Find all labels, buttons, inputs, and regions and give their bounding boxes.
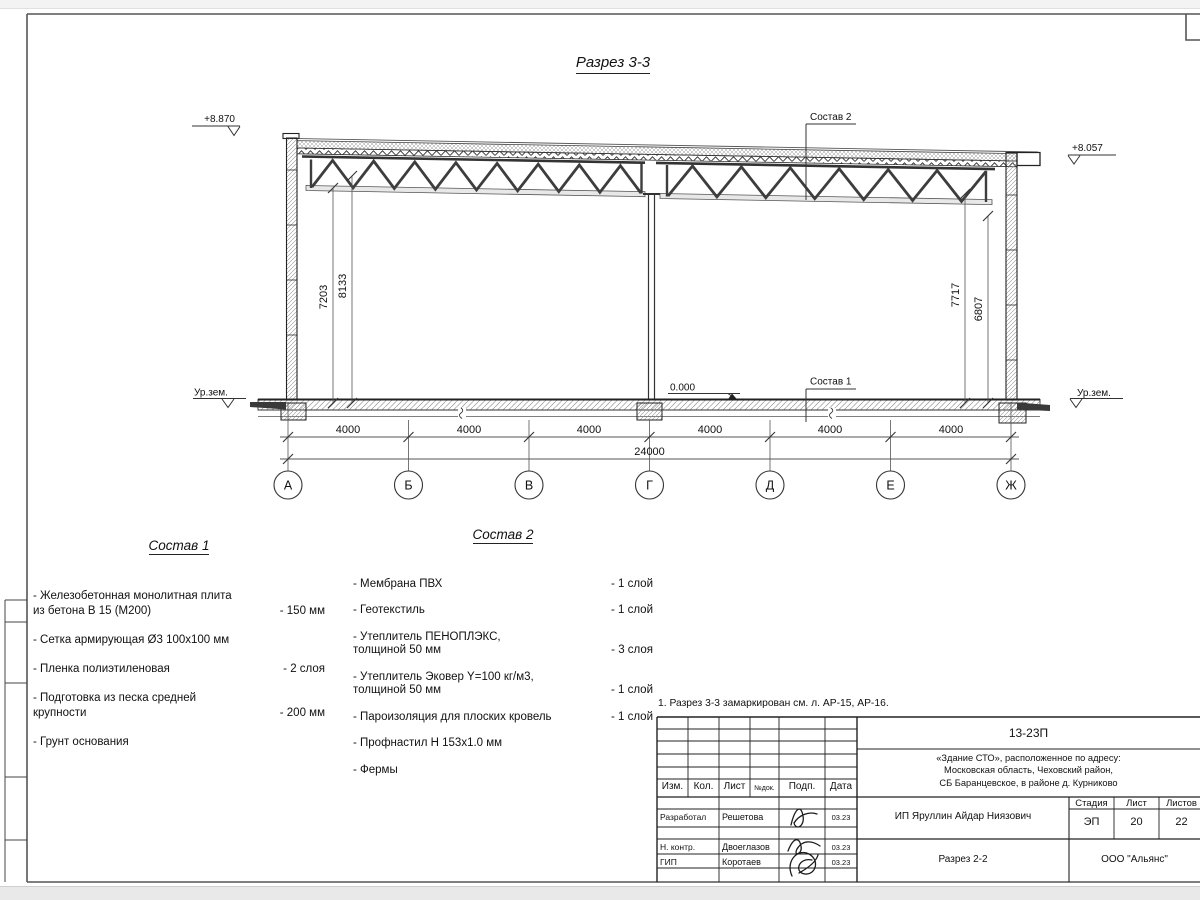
date-nkontr: 03.23 (825, 843, 857, 852)
list-item: - Пленка полиэтиленовая - 2 слоя (33, 662, 325, 677)
list-item: - Утеплитель Эковер Y=100 кг/м3,толщиной… (353, 671, 653, 698)
elevation-mark-right (1068, 155, 1116, 164)
company-name: ООО "Альянс" (1069, 854, 1200, 865)
vdim-6807: 6807 (973, 297, 985, 321)
span-dim: 4000 (577, 424, 601, 436)
col-data: Дата (825, 781, 857, 792)
role-razrabotal: Разработал (660, 812, 718, 822)
name-reshetova: Решетова (722, 812, 778, 822)
signature-dvoeglazov (788, 840, 820, 854)
vdim-7717: 7717 (950, 283, 962, 307)
left-wall (287, 138, 298, 400)
list-item: - Мембрана ПВХ - 1 слой (353, 578, 653, 592)
date-razrabotal: 03.23 (825, 813, 857, 822)
list-item: - Геотекстиль - 1 слой (353, 604, 653, 618)
total-dim: 24000 (634, 446, 665, 458)
sostav2-heading: Состав 2 (473, 528, 534, 544)
signatures (788, 809, 820, 876)
ground-right-label: Ур.зем. (1077, 388, 1111, 399)
col-kol: Кол. (688, 781, 719, 792)
axis-letter: А (284, 479, 293, 493)
list-item: - Фермы (353, 764, 653, 778)
sostav2-list: Состав 2 - Мембрана ПВХ - 1 слой - Геоте… (353, 528, 653, 790)
project-code: 13-23П (857, 726, 1200, 740)
col-list: Лист (719, 781, 750, 792)
sheet-label: Лист (1114, 798, 1159, 809)
elevation-left-label: +8.870 (204, 114, 235, 125)
truss-bottom-chord-right (660, 194, 992, 205)
elevation-mark-left (192, 126, 240, 136)
sheet-number: 20 (1114, 816, 1159, 828)
span-dim: 4000 (336, 424, 360, 436)
stage-label: Стадия (1069, 798, 1114, 809)
signature-reshetova (791, 809, 817, 827)
list-item: - Профнастил Н 153х1.0 мм (353, 737, 653, 751)
name-dvoeglazov: Двоеглазов (722, 842, 778, 852)
sostav2-leader-label: Состав 2 (810, 112, 852, 123)
list-item: - Утеплитель ПЕНОПЛЭКС,толщиной 50 мм - … (353, 631, 653, 658)
list-item: - Подготовка из песка среднейкрупности -… (33, 691, 325, 721)
role-gip: ГИП (660, 857, 718, 867)
vdim-8133: 8133 (337, 274, 349, 298)
zero-level-label: 0.000 (670, 383, 695, 394)
foundation-pad-middle (637, 403, 662, 420)
object-description: «Здание СТО», расположенное по адресу: М… (857, 752, 1200, 789)
signature-korotaev (790, 853, 818, 876)
axis-letter: Б (404, 479, 412, 493)
list-item: - Пароизоляция для плоских кровель - 1 с… (353, 711, 653, 725)
drawing-sheet: +8.870 +8.057 Ур.зем. Ур.зем. 0.000 Сост… (0, 0, 1200, 900)
axis-letter: Е (886, 479, 894, 493)
building-section (250, 134, 1050, 424)
axis-letter: Г (646, 479, 653, 493)
span-dim: 4000 (457, 424, 481, 436)
list-item: - Грунт основания (33, 735, 325, 750)
right-wall (1006, 153, 1017, 401)
span-dim: 4000 (939, 424, 963, 436)
drawing-title-wrap: Разрез 3-3 (528, 54, 698, 74)
client-name: ИП Яруллин Айдар Ниязович (857, 811, 1069, 822)
axis-letter: Д (766, 479, 775, 493)
name-korotaev: Коротаев (722, 857, 778, 867)
ground-left-label: Ур.зем. (194, 388, 228, 399)
stage-value: ЭП (1069, 816, 1114, 828)
sheets-label: Листов (1159, 798, 1200, 809)
role-nkontr: Н. контр. (660, 842, 718, 852)
axis-letter: В (525, 479, 533, 493)
span-dim: 4000 (698, 424, 722, 436)
col-podp: Подп. (779, 781, 825, 792)
elevation-right-label: +8.057 (1072, 143, 1103, 154)
drawing-title: Разрез 3-3 (576, 54, 650, 74)
date-gip: 03.23 (825, 858, 857, 867)
ground-level-mark-right (1070, 399, 1123, 408)
right-roof-edge-cap (1017, 153, 1040, 166)
vdim-7203: 7203 (318, 285, 330, 309)
middle-column (649, 195, 655, 400)
span-dim: 4000 (818, 424, 842, 436)
sostav1-leader-label: Состав 1 (810, 377, 852, 388)
sheet-note: 1. Разрез 3-3 замаркирован см. л. АР-15,… (658, 698, 1078, 709)
col-dok: №док. (750, 781, 779, 792)
sostav1-list: Состав 1 - Железобетонная монолитная пли… (33, 538, 325, 764)
col-izm: Изм. (657, 781, 688, 792)
sostav1-heading: Состав 1 (149, 538, 210, 555)
list-item: - Железобетонная монолитная плитаиз бето… (33, 589, 325, 619)
sheet-title: Разрез 2-2 (857, 854, 1069, 865)
list-item: - Сетка армирующая Ø3 100х100 мм (33, 633, 325, 648)
sheets-total: 22 (1159, 816, 1200, 828)
axis-letter: Ж (1005, 479, 1017, 493)
ground-level-mark-left (193, 399, 246, 408)
